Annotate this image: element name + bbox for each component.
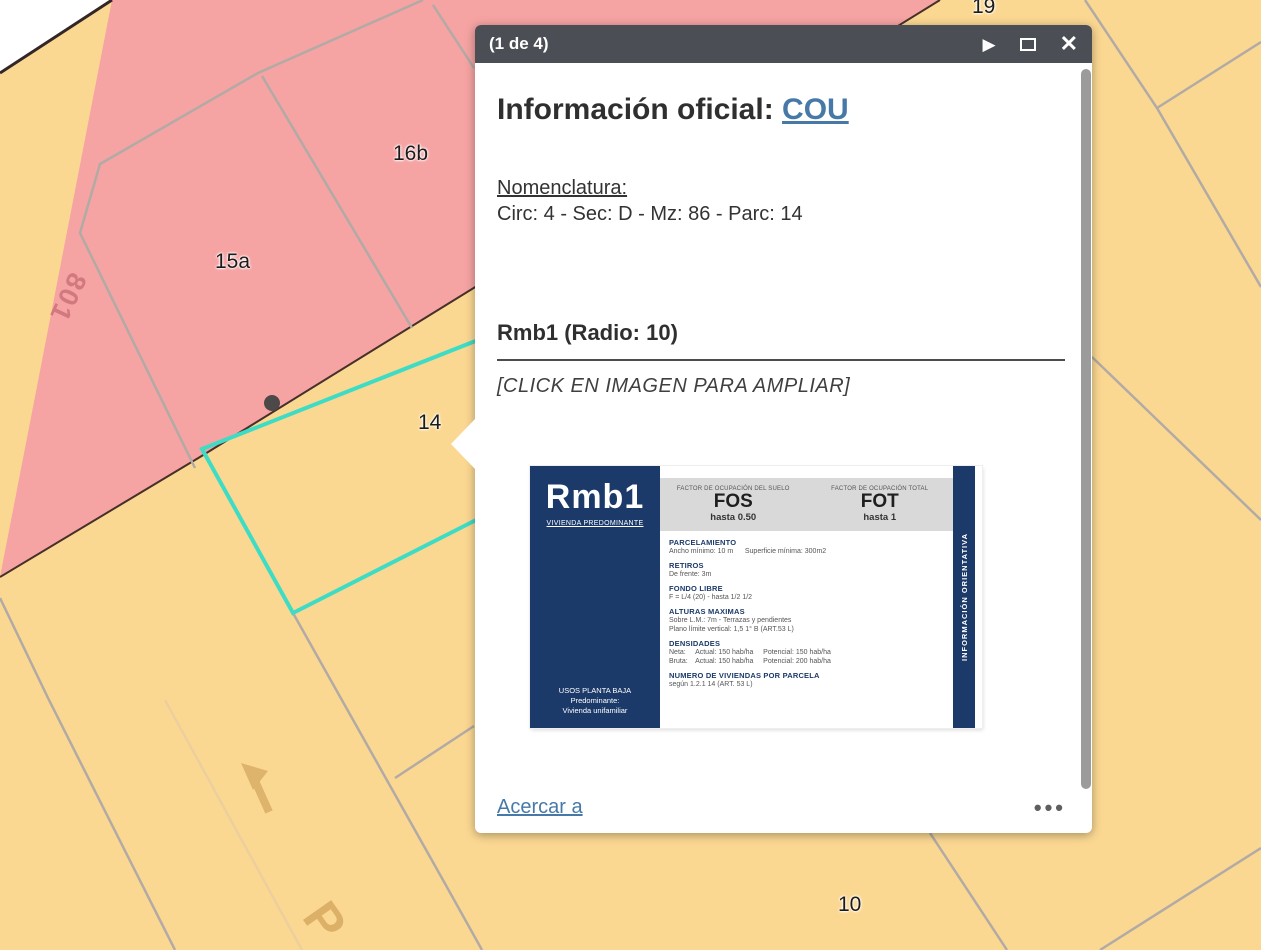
zoning-rule: RETIROS De frente: 3m (669, 561, 953, 579)
zone-uses: USOS PLANTA BAJA Predominante: Vivienda … (559, 686, 631, 716)
rule-line: Neta: Actual: 150 hab/ha Potencial: 150 … (669, 648, 953, 657)
map-info-popup: (1 de 4) ▶ ✕ Información oficial: COU No… (475, 25, 1092, 833)
side-strip-label: INFORMACIÓN ORIENTATIVA (960, 533, 969, 661)
zoom-to-link[interactable]: Acercar a (497, 796, 583, 819)
popup-title: Información oficial: COU (497, 91, 1065, 129)
zoning-card-left-panel: Rmb1 VIVIENDA PREDOMINANTE USOS PLANTA B… (530, 466, 660, 728)
popup-pager: (1 de 4) (489, 34, 958, 54)
popup-anchor-tail (451, 419, 475, 469)
popup-body: Información oficial: COU Nomenclatura: C… (475, 91, 1092, 728)
zone-code: Rmb1 (546, 478, 644, 517)
rule-heading: NUMERO DE VIVIENDAS POR PARCELA (669, 671, 953, 680)
zoning-rule: ALTURAS MAXIMAS Sobre L.M.: 7m - Terraza… (669, 607, 953, 634)
parcel-label-14: 14 (418, 411, 441, 435)
zoning-rule: DENSIDADES Neta: Actual: 150 hab/ha Pote… (669, 639, 953, 666)
play-icon: ▶ (982, 36, 995, 53)
fot-value: hasta 1 (863, 512, 896, 523)
fot-label: FOT (861, 492, 899, 512)
rule-heading: FONDO LIBRE (669, 584, 953, 593)
rule-line: Sobre L.M.: 7m - Terrazas y pendientes (669, 616, 953, 625)
rule-line: F = L/4 (20) - hasta 1/2 1/2 (669, 593, 953, 602)
rule-line: De frente: 3m (669, 570, 953, 579)
parcel-label-16b: 16b (393, 142, 428, 166)
map-viewport: 801 16b 15a 14 19 10 P (1 de 4) ▶ ✕ Info… (0, 0, 1261, 950)
popup-footer: Acercar a ••• (497, 796, 1066, 819)
zone-title: Rmb1 (Radio: 10) (497, 319, 1065, 347)
maximize-button[interactable] (1020, 38, 1036, 51)
fos-label: FOS (714, 492, 753, 512)
zone-uses-line: USOS PLANTA BAJA (559, 686, 631, 696)
cou-link[interactable]: COU (782, 93, 849, 126)
close-button[interactable]: ✕ (1060, 33, 1078, 55)
rule-heading: PARCELAMIENTO (669, 538, 953, 547)
popup-title-text: Información oficial: (497, 93, 782, 126)
zone-uses-line: Predominante: (559, 696, 631, 706)
divider (497, 359, 1065, 361)
close-icon: ✕ (1060, 33, 1078, 55)
rule-line: Ancho mínimo: 10 m Superficie mínima: 30… (669, 547, 953, 556)
click-to-enlarge-note: [CLICK EN IMAGEN PARA AMPLIAR] (497, 375, 1065, 398)
rule-heading: RETIROS (669, 561, 953, 570)
nomenclature-block: Nomenclatura: Circ: 4 - Sec: D - Mz: 86 … (497, 175, 1065, 227)
zoning-card-side-strip: INFORMACIÓN ORIENTATIVA (953, 466, 975, 728)
fot-column: FACTOR DE OCUPACIÓN TOTAL FOT hasta 1 (807, 478, 954, 531)
zoning-rule: NUMERO DE VIVIENDAS POR PARCELA según 1.… (669, 671, 953, 689)
fos-value: hasta 0.50 (710, 512, 756, 523)
nomenclature-value: Circ: 4 - Sec: D - Mz: 86 - Parc: 14 (497, 201, 1065, 227)
rule-heading: ALTURAS MAXIMAS (669, 607, 953, 616)
popup-header: (1 de 4) ▶ ✕ (475, 25, 1092, 63)
fos-column: FACTOR DE OCUPACIÓN DEL SUELO FOS hasta … (660, 478, 807, 531)
zoning-card-image[interactable]: Rmb1 VIVIENDA PREDOMINANTE USOS PLANTA B… (530, 466, 982, 728)
parcel-label-19: 19 (972, 0, 995, 19)
zone-code-subtitle: VIVIENDA PREDOMINANTE (547, 520, 644, 527)
parcel-label-10: 10 (838, 893, 861, 917)
parcel-label-15a: 15a (215, 250, 250, 274)
more-options-button[interactable]: ••• (1034, 803, 1066, 813)
nomenclature-label: Nomenclatura: (497, 175, 1065, 201)
popup-scrollbar[interactable] (1081, 69, 1091, 789)
rule-line: Plano límite vertical: 1,5 1° B (ART.53 … (669, 625, 953, 634)
ellipsis-icon: ••• (1034, 795, 1066, 820)
zoning-rule: FONDO LIBRE F = L/4 (20) - hasta 1/2 1/2 (669, 584, 953, 602)
zone-uses-line: Vivienda unifamiliar (559, 706, 631, 716)
zoning-rule: PARCELAMIENTO Ancho mínimo: 10 m Superfi… (669, 538, 953, 556)
fos-fot-band: FACTOR DE OCUPACIÓN DEL SUELO FOS hasta … (660, 478, 953, 531)
next-feature-button[interactable]: ▶ (982, 36, 995, 53)
zoning-rules-list: PARCELAMIENTO Ancho mínimo: 10 m Superfi… (660, 531, 953, 728)
selected-point-marker (264, 395, 280, 411)
maximize-icon (1020, 38, 1036, 51)
rule-line: Bruta: Actual: 150 hab/ha Potencial: 200… (669, 657, 953, 666)
rule-line: según 1.2.1 14 (ART. 53 L) (669, 680, 953, 689)
rule-heading: DENSIDADES (669, 639, 953, 648)
